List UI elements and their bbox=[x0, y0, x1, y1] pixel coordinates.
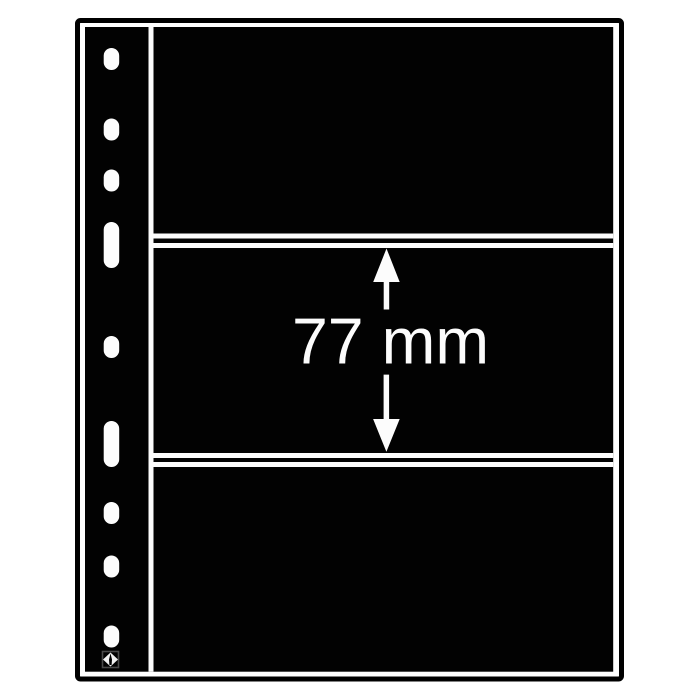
svg-text:77 mm: 77 mm bbox=[292, 306, 489, 378]
